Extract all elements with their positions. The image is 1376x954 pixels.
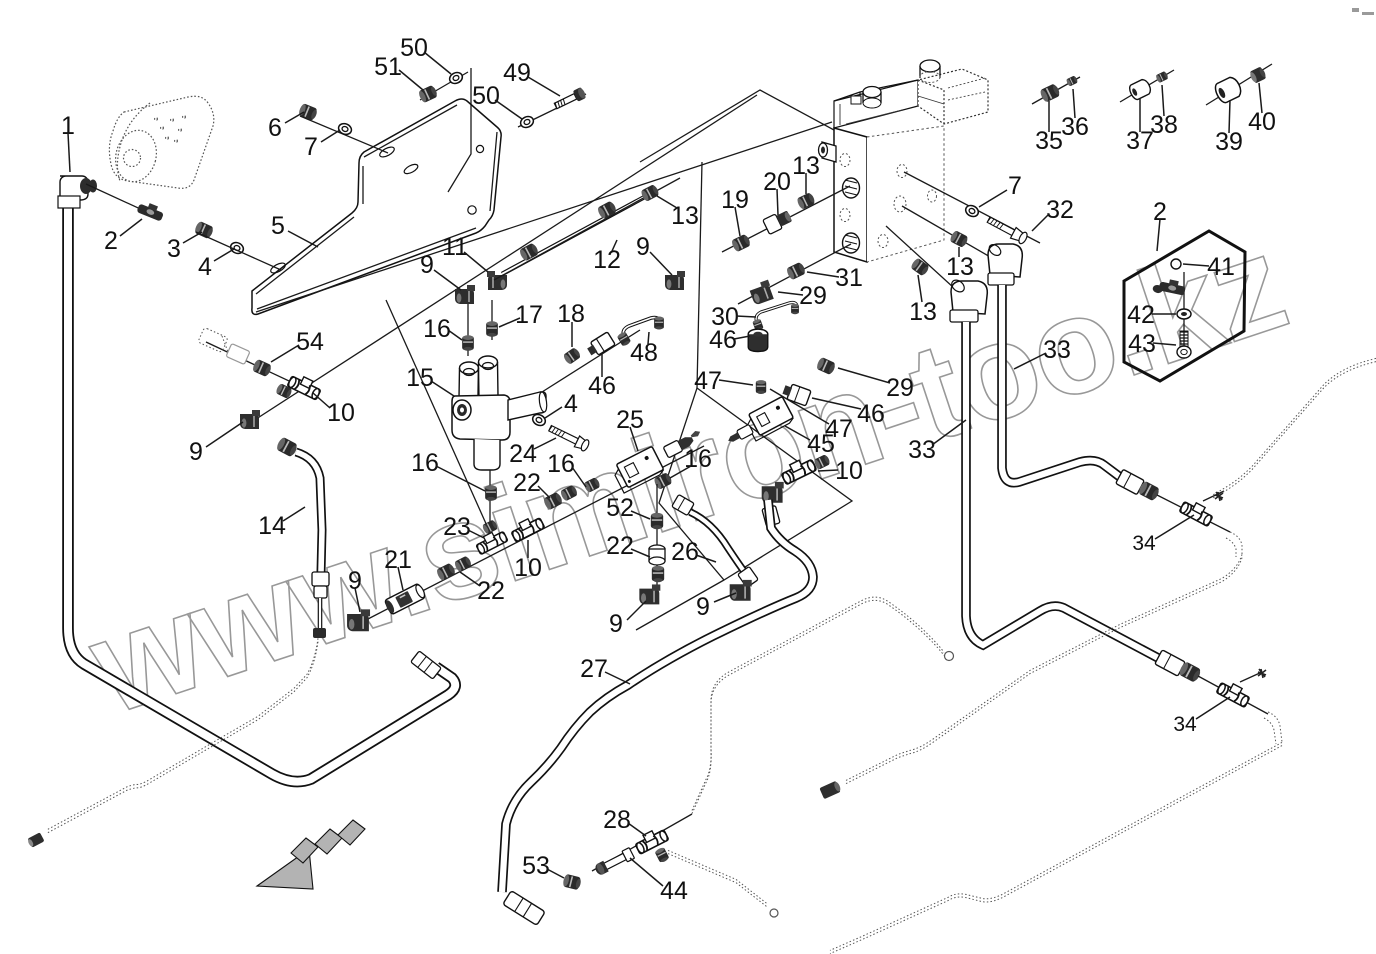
svg-text:50: 50	[472, 82, 500, 110]
svg-text:10: 10	[327, 399, 355, 427]
svg-text:7: 7	[304, 133, 318, 161]
svg-text:16: 16	[411, 449, 439, 477]
svg-text:22: 22	[513, 469, 541, 497]
svg-text:28: 28	[603, 806, 631, 834]
svg-text:4: 4	[564, 390, 578, 418]
svg-text:12: 12	[593, 246, 621, 274]
svg-text:47: 47	[694, 367, 722, 395]
svg-text:17: 17	[515, 301, 543, 329]
svg-text:33: 33	[1043, 336, 1071, 364]
svg-text:9: 9	[420, 251, 434, 279]
svg-text:52: 52	[606, 494, 634, 522]
svg-text:48: 48	[630, 339, 658, 367]
svg-text:26: 26	[671, 538, 699, 566]
svg-text:5: 5	[271, 212, 285, 240]
svg-text:7: 7	[1008, 172, 1022, 200]
svg-text:43: 43	[1128, 330, 1156, 358]
svg-text:14: 14	[258, 512, 286, 540]
svg-text:50: 50	[400, 34, 428, 62]
svg-text:44: 44	[660, 877, 688, 905]
svg-text:9: 9	[189, 438, 203, 466]
svg-text:9: 9	[609, 610, 623, 638]
svg-text:34: 34	[1132, 532, 1156, 555]
svg-text:25: 25	[616, 406, 644, 434]
svg-text:18: 18	[557, 300, 585, 328]
svg-text:2: 2	[104, 227, 118, 255]
svg-text:11: 11	[442, 233, 468, 261]
svg-text:54: 54	[296, 328, 324, 356]
svg-text:32: 32	[1046, 196, 1074, 224]
svg-text:53: 53	[522, 852, 550, 880]
svg-text:34: 34	[1173, 713, 1197, 736]
svg-text:46: 46	[709, 326, 737, 354]
svg-text:45: 45	[807, 430, 835, 458]
svg-text:3: 3	[167, 235, 181, 263]
svg-text:46: 46	[857, 400, 885, 428]
svg-text:10: 10	[514, 554, 542, 582]
svg-text:49: 49	[503, 59, 531, 87]
svg-text:51: 51	[374, 53, 402, 81]
svg-text:24: 24	[509, 440, 537, 468]
svg-text:42: 42	[1127, 301, 1155, 329]
svg-text:27: 27	[580, 655, 608, 683]
svg-text:6: 6	[268, 114, 282, 142]
svg-text:15: 15	[406, 364, 434, 392]
svg-text:16: 16	[547, 450, 575, 478]
svg-text:33: 33	[908, 436, 936, 464]
svg-text:41: 41	[1207, 253, 1235, 281]
svg-text:29: 29	[886, 374, 914, 402]
svg-text:16: 16	[423, 315, 451, 343]
svg-text:22: 22	[606, 532, 634, 560]
svg-text:9: 9	[696, 593, 710, 621]
svg-text:16: 16	[684, 445, 712, 473]
svg-text:9: 9	[636, 233, 650, 261]
svg-text:13: 13	[909, 298, 937, 326]
svg-text:29: 29	[799, 282, 827, 310]
svg-text:4: 4	[198, 253, 212, 281]
svg-text:31: 31	[835, 264, 863, 292]
svg-text:10: 10	[835, 457, 863, 485]
svg-text:23: 23	[443, 513, 471, 541]
svg-text:22: 22	[477, 577, 505, 605]
svg-text:13: 13	[946, 253, 974, 281]
